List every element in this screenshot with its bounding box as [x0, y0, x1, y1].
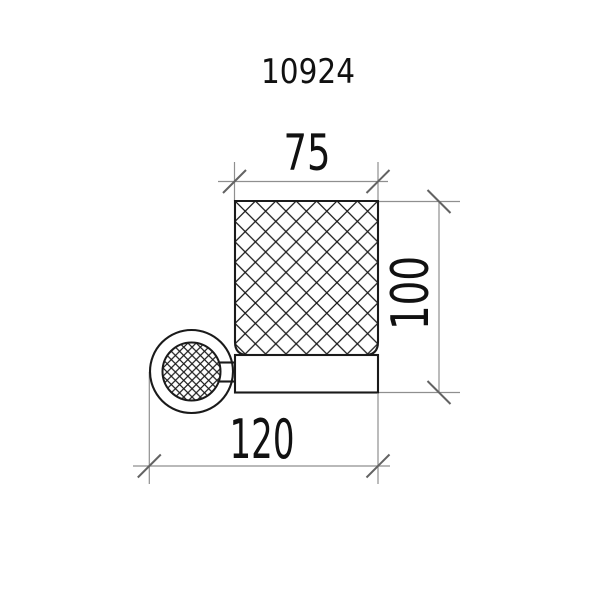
dimension-height-right: 100: [378, 190, 460, 404]
drawing-canvas: 10924 75 100 120: [0, 0, 600, 600]
dimension-width-top: 75: [218, 124, 390, 201]
dimension-value-width-bottom: 120: [230, 408, 295, 471]
glass-crosshatch-body: [235, 201, 378, 355]
holder-ring-band: [235, 355, 378, 393]
product-views: [150, 201, 378, 413]
product-number-label: 10924: [261, 52, 355, 92]
technical-drawing: 10924 75 100 120: [0, 0, 600, 600]
dimension-value-height-right: 100: [381, 256, 441, 330]
wall-mount-inner-circle: [163, 343, 221, 401]
dimension-value-width-top: 75: [284, 124, 331, 182]
